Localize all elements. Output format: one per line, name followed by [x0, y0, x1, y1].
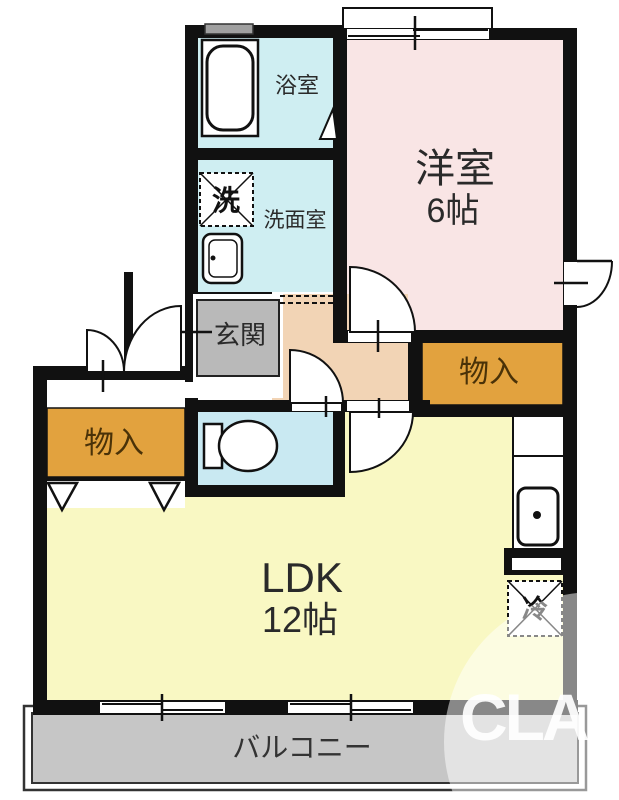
closet-left-bottom-line: [44, 477, 185, 481]
toilet-icon: [204, 421, 277, 471]
wall-storage-right-bottom: [408, 405, 577, 417]
wall-toilet-bottom: [185, 485, 345, 497]
ldk-label: LDK: [261, 554, 343, 601]
watermark-text: CLASH: [460, 680, 619, 754]
wall-utility-western: [333, 25, 347, 343]
entrance-label: 玄関: [214, 320, 266, 350]
wall-left-toilet: [185, 398, 198, 497]
wall-bath-washroom: [198, 148, 333, 160]
bathroom-label: 浴室: [275, 73, 319, 98]
wall-left: [33, 366, 47, 715]
washroom-label: 洗面室: [264, 209, 327, 232]
washbasin-icon: [203, 234, 242, 283]
wall-toilet-right: [333, 400, 345, 497]
floor-plan-page: 洗 冷 CLASH 浴室 洗面室 洋室 6帖 玄関 物入 物入: [0, 0, 619, 800]
bathtub-icon: [202, 40, 258, 136]
western-room-label: 洋室: [415, 147, 495, 191]
washing-machine-label: 洗: [212, 185, 240, 216]
kitchen-sink-icon: [518, 488, 558, 545]
closet-left-top-space: [47, 384, 185, 408]
ldk-size: 12帖: [262, 599, 338, 640]
window-western-outer: [343, 8, 492, 29]
window-bathroom: [205, 24, 253, 34]
floor-plan: 洗 冷 CLASH 浴室 洗面室 洋室 6帖 玄関 物入 物入: [0, 0, 619, 800]
storage-left-label: 物入: [84, 427, 144, 460]
storage-right-label: 物入: [459, 356, 519, 389]
balcony-label: バルコニー: [232, 732, 371, 763]
kitchen-stub-opening: [512, 558, 561, 570]
western-room-size: 6帖: [427, 192, 480, 230]
